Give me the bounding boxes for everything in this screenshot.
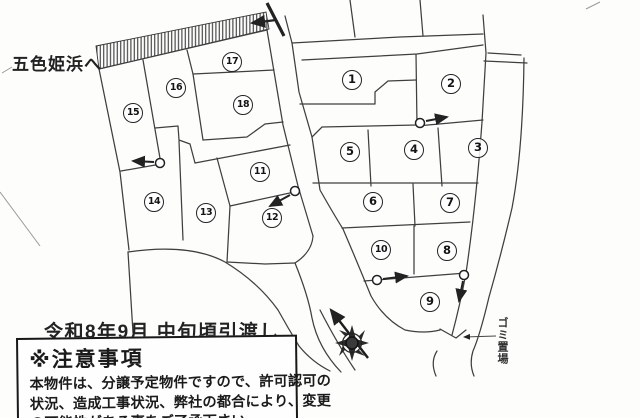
lot-number-3: 3 [468,138,488,158]
beach-direction-label: 五色姫浜へ [12,50,102,75]
garbage-area-label: ゴミ置場 [494,317,510,377]
notice-body-line: 本物件は、分譲予定物件ですので、許可認可の [29,373,287,396]
compass-rose [331,310,369,361]
lot-number-13: 13 [196,203,216,223]
notice-title: ※注意事項 [29,341,287,374]
lot-number-12: 12 [262,208,282,228]
entrance-marker-lot10 [373,276,408,285]
lot-number-14: 14 [144,192,164,212]
lot-number-16: 16 [166,78,186,98]
lot-number-17: 17 [222,52,242,72]
lot-number-8: 8 [437,241,457,261]
lot-number-5: 5 [340,142,360,162]
lot-number-4: 4 [404,140,424,160]
garbage-label-leader [464,336,496,337]
entrance-marker-lot2 [416,117,448,128]
notice-body: 本物件は、分譲予定物件ですので、許可認可の状況、造成工事状況、弊社の都合により、… [29,373,288,418]
lot-number-2: 2 [441,74,461,94]
faint-boundary-lines [0,2,600,246]
lot-number-11: 11 [250,162,270,182]
lot-number-9: 9 [420,292,440,312]
lot-number-10: 10 [371,240,391,260]
lot-number-7: 7 [440,193,460,213]
lot-number-1: 1 [342,70,362,90]
notice-box: ※注意事項 本物件は、分譲予定物件ですので、許可認可の状況、造成工事状況、弊社の… [16,335,298,418]
lot-number-15: 15 [123,103,143,123]
lot-map-flyer: 五色姫浜へ 令和8年9月 中旬頃引渡し ゴミ置場 123456789101112… [0,0,640,418]
lot-number-18: 18 [233,95,253,115]
lot-number-6: 6 [363,192,383,212]
beach-walkway-strip [96,3,284,69]
